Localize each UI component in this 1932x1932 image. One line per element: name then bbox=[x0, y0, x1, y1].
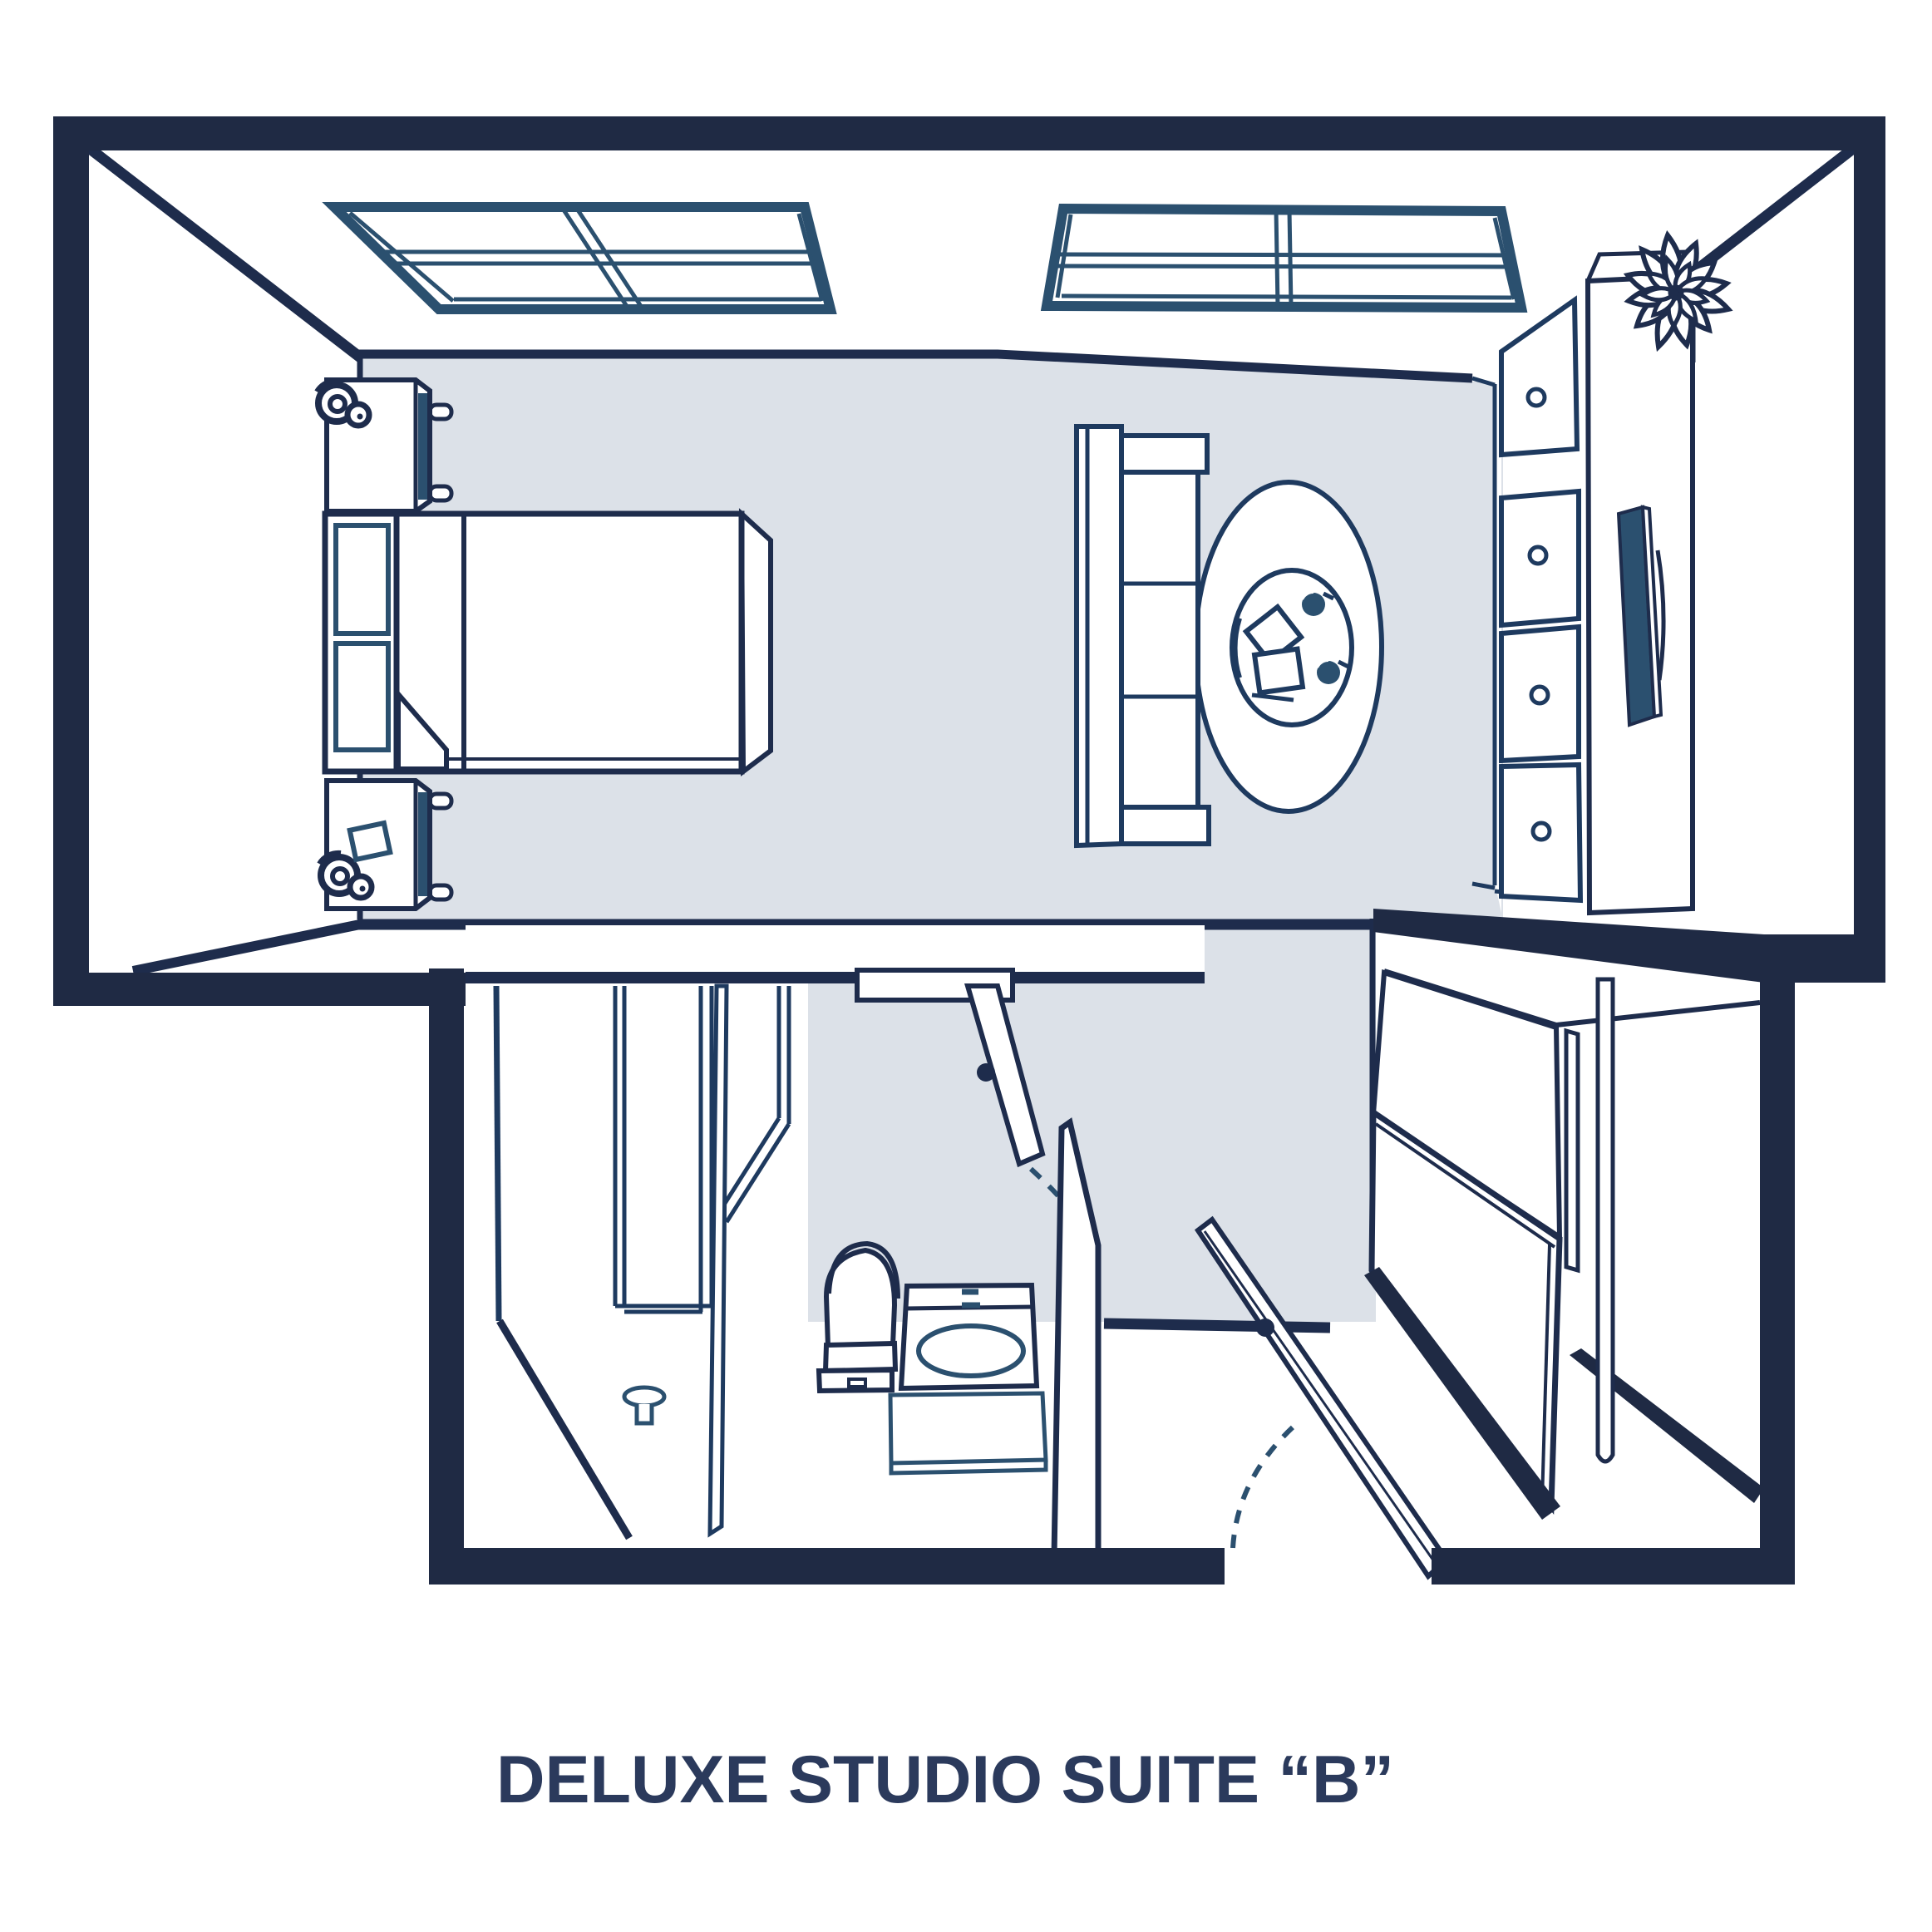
svg-text:DELUXE STUDIO SUITE “B”: DELUXE STUDIO SUITE “B” bbox=[496, 1742, 1394, 1817]
